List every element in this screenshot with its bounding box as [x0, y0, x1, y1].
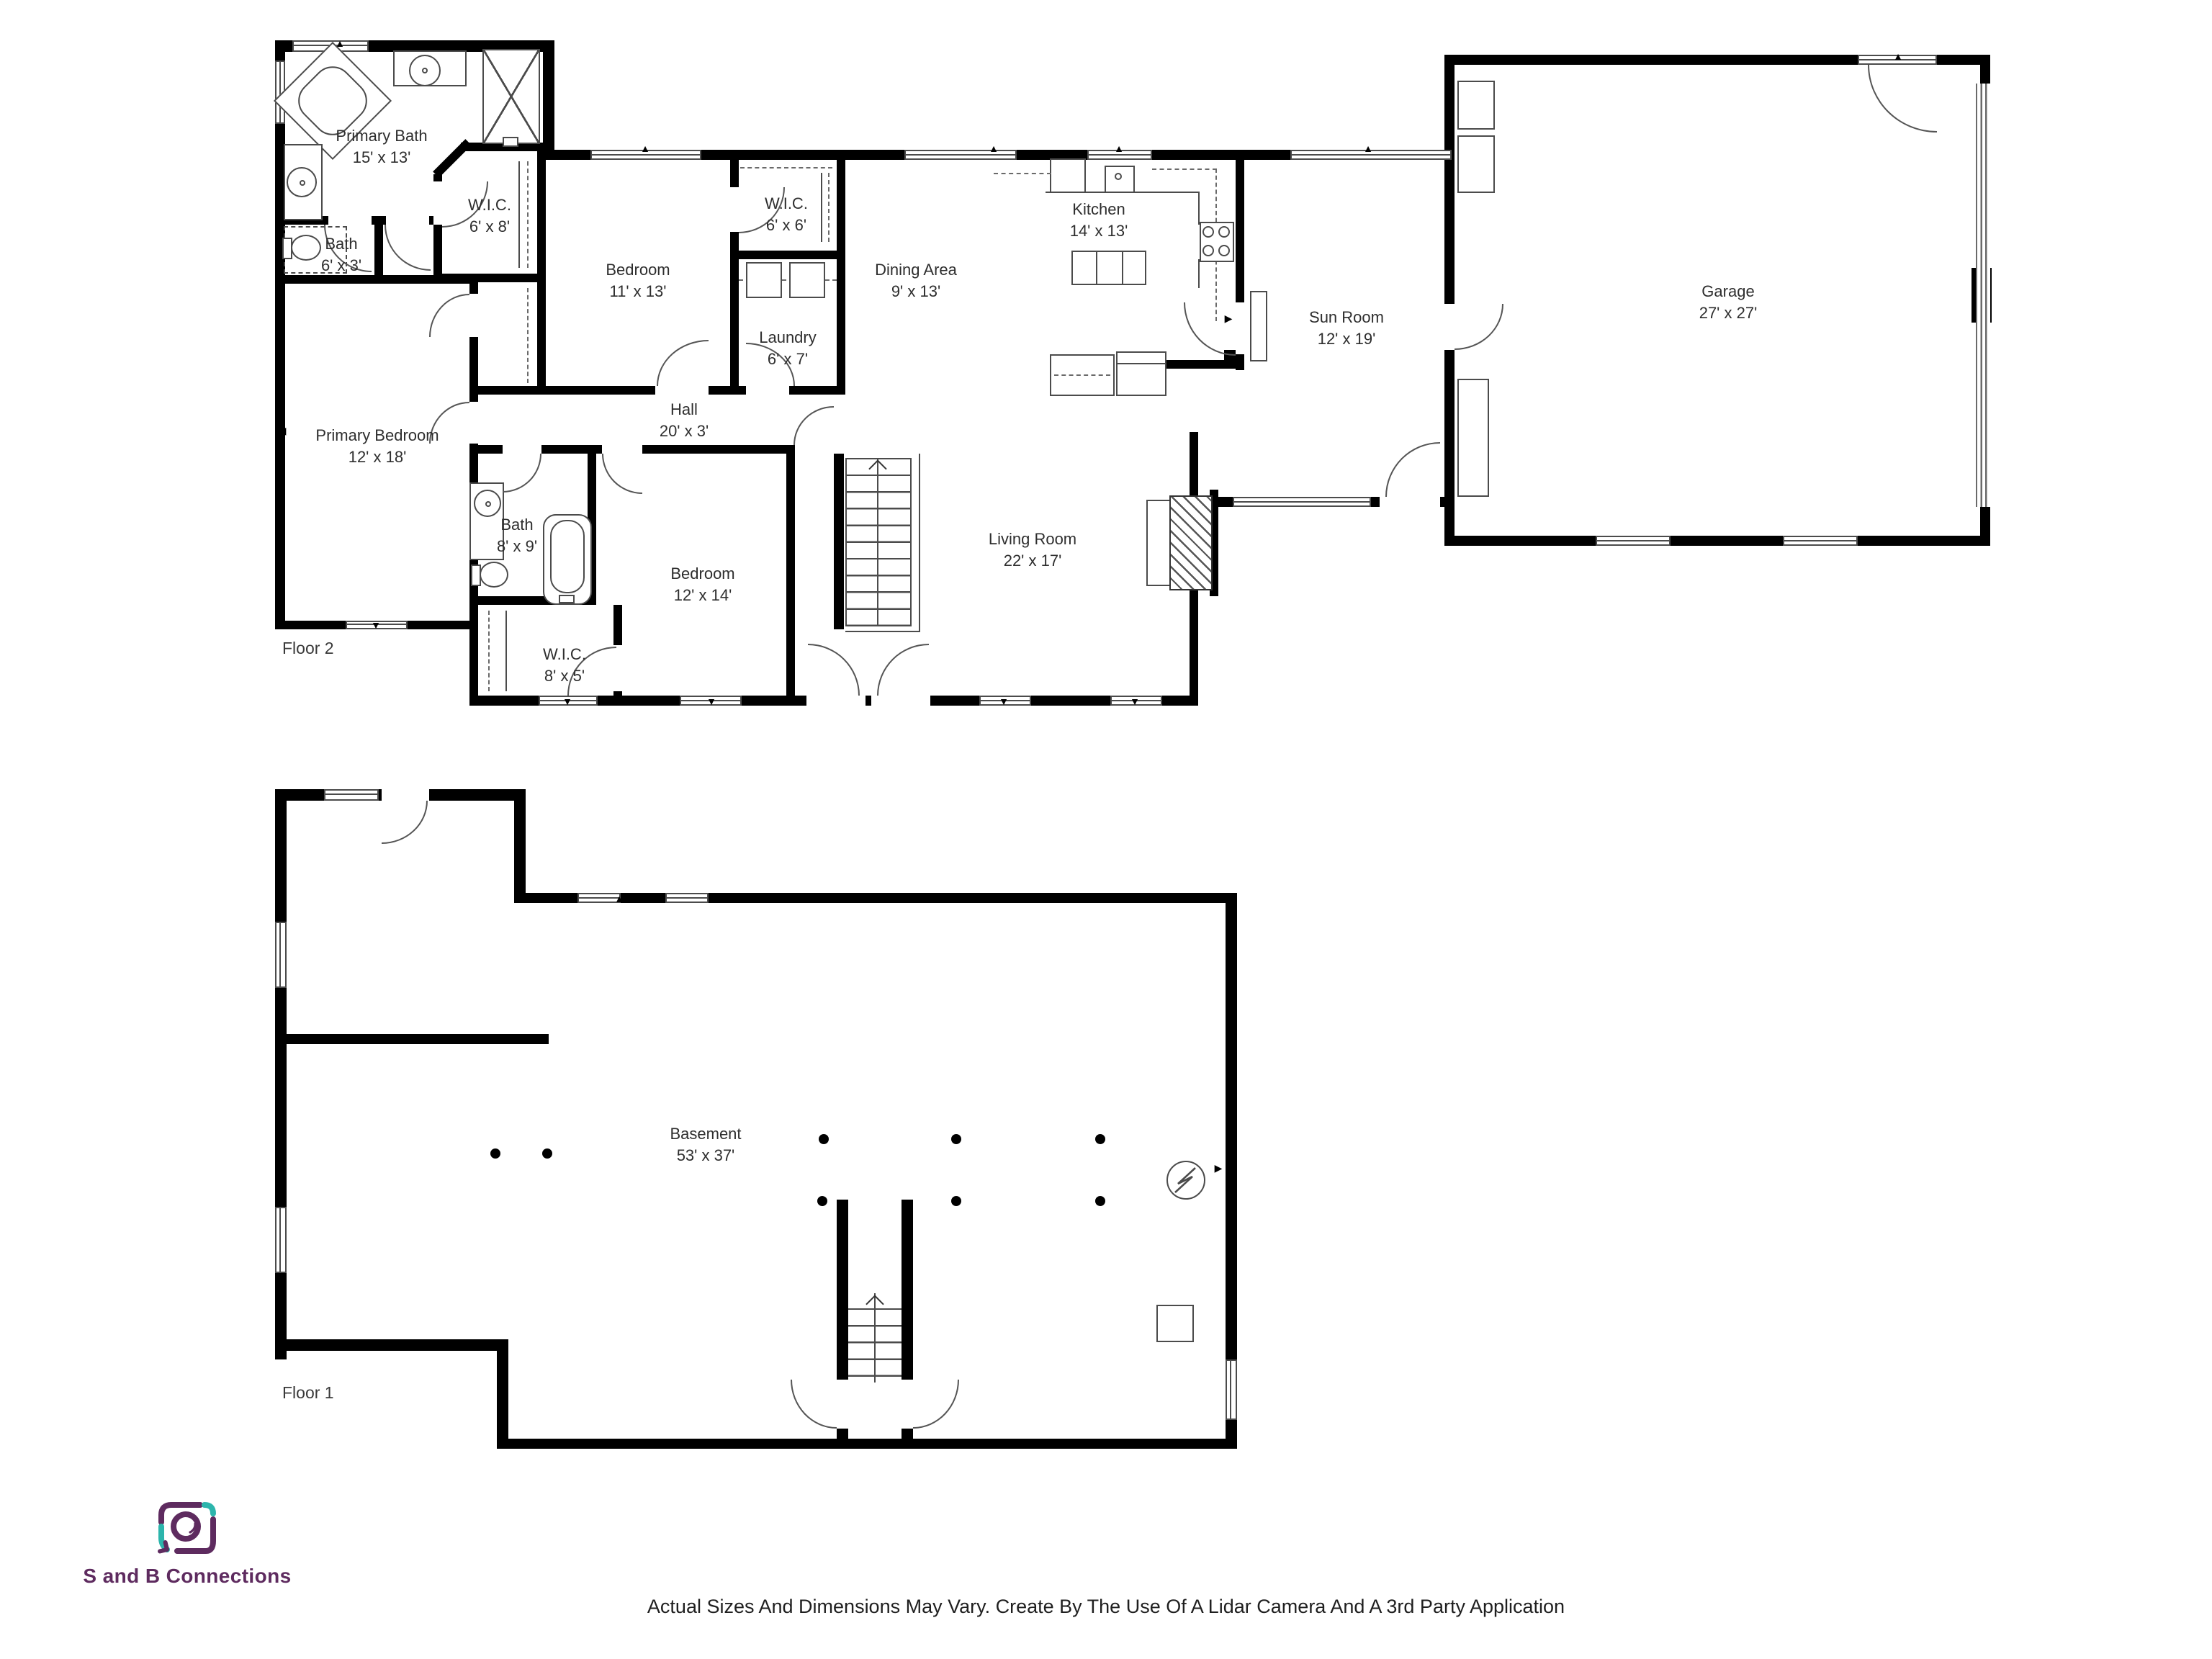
floor-plan-canvas: Actual Sizes And Dimensions May Vary. Cr… — [0, 0, 2212, 1659]
support-column — [951, 1196, 961, 1206]
door-gap — [902, 1380, 913, 1429]
door-gap — [806, 696, 866, 706]
room-label-wic-8x5: W.I.C.8' x 5' — [543, 645, 586, 687]
room-label-primary-bath: Primary Bath15' x 13' — [336, 127, 427, 168]
support-column — [951, 1134, 961, 1144]
wall — [275, 40, 285, 629]
wall — [834, 454, 844, 629]
room-dimensions: 12' x 19' — [1309, 329, 1384, 350]
burner — [1202, 245, 1214, 256]
door-gap — [382, 789, 429, 801]
room-name: W.I.C. — [468, 196, 511, 217]
counter-edge — [1116, 363, 1166, 364]
room-label-hall: Hall20' x 3' — [660, 400, 709, 442]
closet-rod-dashed — [740, 167, 832, 168]
wall-marker-icon: ▶ — [1225, 315, 1233, 325]
company-logo: S and B Connections — [58, 1498, 317, 1587]
wall-marker-icon: ▲ — [614, 895, 624, 905]
counter-edge — [1046, 192, 1200, 193]
room-label-bedroom-11x13: Bedroom11' x 13' — [606, 261, 670, 302]
counter-edge — [1198, 259, 1200, 288]
kitchen-island — [1071, 251, 1146, 285]
wall — [730, 251, 845, 259]
room-label-bath-small: Bath6' x 3' — [321, 235, 361, 276]
door-gap — [655, 386, 709, 395]
room-dimensions: 27' x 27' — [1699, 303, 1758, 324]
room-label-living-room: Living Room22' x 17' — [989, 530, 1076, 572]
wall — [433, 139, 472, 178]
fireplace — [1169, 495, 1213, 590]
room-name: W.I.C. — [765, 194, 808, 215]
wall — [275, 1339, 508, 1351]
wall — [1190, 588, 1198, 706]
wall-marker-icon: ▼ — [706, 698, 716, 708]
room-label-dining-area: Dining Area9' x 13' — [875, 261, 957, 302]
sink-drain — [485, 501, 491, 507]
closet-rod — [505, 611, 507, 691]
wall — [543, 40, 554, 158]
counter-dashed — [1054, 374, 1110, 376]
island-divider — [1122, 251, 1123, 285]
stairs-outline — [845, 631, 920, 632]
room-name: Laundry — [759, 328, 817, 349]
door-gap — [433, 181, 442, 225]
counter-dashed — [1152, 168, 1217, 170]
stairs-outline — [919, 454, 920, 632]
room-name: Bath — [497, 516, 537, 536]
window — [904, 150, 1017, 160]
wall-marker-icon: ▲ — [1114, 145, 1124, 155]
wall-marker-icon: ▲ — [1893, 53, 1903, 63]
burner — [1218, 226, 1230, 238]
room-dimensions: 11' x 13' — [606, 282, 670, 302]
door-arc — [503, 454, 541, 493]
wall — [837, 150, 845, 395]
wall — [1190, 432, 1198, 497]
wall — [275, 789, 287, 1359]
burner — [1202, 226, 1214, 238]
wall-marker-icon: ▲ — [427, 791, 437, 801]
window — [324, 789, 379, 801]
window — [1596, 536, 1671, 546]
door-gap — [1444, 304, 1455, 350]
disclaimer-text: Actual Sizes And Dimensions May Vary. Cr… — [647, 1596, 1565, 1617]
room-name: Bedroom — [606, 261, 670, 282]
wall — [730, 150, 739, 395]
room-dimensions: 6' x 3' — [321, 256, 361, 276]
room-name: Garage — [1699, 282, 1758, 303]
shelf — [1250, 291, 1267, 361]
door-arc — [382, 801, 428, 844]
garage-door — [1976, 84, 1990, 507]
island-divider — [1096, 251, 1097, 285]
door-arc — [808, 644, 860, 696]
door-arc — [429, 294, 469, 337]
door-gap — [386, 216, 429, 225]
room-dimensions: 15' x 13' — [336, 148, 427, 168]
closet-rod-dashed — [828, 173, 829, 242]
counter — [1116, 351, 1166, 396]
electric-bolt-icon — [1166, 1161, 1205, 1200]
door-gap — [746, 386, 789, 395]
door-arc — [1455, 304, 1503, 350]
wall — [786, 454, 795, 700]
tub-faucet — [559, 595, 575, 603]
window — [1226, 1359, 1237, 1420]
door-gap — [1380, 497, 1440, 507]
room-label-primary-bedroom: Primary Bedroom12' x 18' — [315, 426, 439, 468]
wall-marker-icon: ▼ — [1130, 698, 1140, 708]
floor-label-floor-2: Floor 2 — [282, 641, 334, 658]
room-label-sun-room: Sun Room12' x 19' — [1309, 308, 1384, 350]
camera-logo-icon — [150, 1498, 225, 1558]
window — [665, 893, 709, 903]
counter-edge — [1198, 193, 1200, 225]
room-label-basement: Basement53' x 37' — [670, 1125, 741, 1166]
closet-rod — [821, 173, 822, 242]
room-name: Basement — [670, 1125, 741, 1146]
wall-marker-icon: ▼ — [371, 621, 381, 631]
room-dimensions: 22' x 17' — [989, 551, 1076, 572]
door-arc — [602, 454, 642, 494]
wall-marker-icon: ◀ — [279, 427, 287, 437]
stairs-center-line — [877, 458, 878, 626]
room-dimensions: 53' x 37' — [670, 1146, 741, 1166]
wall — [1444, 55, 1455, 544]
room-label-wic-6x8: W.I.C.6' x 8' — [468, 196, 511, 238]
floor-label-floor-1: Floor 1 — [282, 1385, 334, 1403]
support-column — [1095, 1134, 1105, 1144]
room-name: Sun Room — [1309, 308, 1384, 329]
wall-marker-icon: ▲ — [1363, 145, 1373, 155]
door-gap — [1236, 302, 1244, 354]
door-gap — [469, 402, 478, 444]
bathtub-basin — [550, 520, 585, 593]
wall-marker-icon: ▼ — [562, 698, 572, 708]
closet-rod-dashed — [488, 611, 490, 691]
window — [1783, 536, 1858, 546]
wall-marker-icon: ▲ — [335, 40, 345, 50]
room-label-laundry: Laundry6' x 7' — [759, 328, 817, 370]
hearth — [1146, 500, 1171, 586]
wall-marker-icon: ◀ — [279, 1089, 287, 1100]
wall-marker-icon: ▼ — [859, 1441, 869, 1451]
door-arc — [1184, 302, 1236, 356]
company-name: S and B Connections — [58, 1564, 317, 1587]
closet-rod-dashed — [527, 288, 529, 383]
support-column — [819, 1134, 829, 1144]
room-dimensions: 12' x 14' — [670, 585, 734, 606]
wall — [275, 1034, 549, 1044]
door-arc — [791, 1380, 837, 1429]
wall-marker-icon: ▶ — [1215, 1164, 1223, 1174]
room-label-bedroom-12x14: Bedroom12' x 14' — [670, 565, 734, 606]
wall-marker-icon: ▲ — [640, 145, 650, 155]
dryer — [789, 262, 825, 298]
door-gap — [503, 445, 541, 454]
window — [275, 1207, 287, 1273]
wall — [514, 801, 526, 902]
room-dimensions: 20' x 3' — [660, 421, 709, 442]
counter-dashed — [994, 173, 1051, 174]
wall-marker-icon: ▼ — [1716, 538, 1726, 548]
door-arc — [913, 1380, 959, 1429]
door-gap — [602, 445, 642, 454]
workbench — [1457, 379, 1489, 497]
room-name: Bedroom — [670, 565, 734, 585]
room-name: Primary Bedroom — [315, 426, 439, 447]
door-gap — [730, 187, 739, 232]
wall — [505, 1439, 1237, 1449]
room-dimensions: 8' x 9' — [497, 536, 537, 557]
closet-rod-dashed — [527, 161, 529, 268]
door-arc — [877, 644, 929, 696]
faucet — [1115, 173, 1122, 180]
door-arc — [1385, 442, 1440, 497]
room-label-garage: Garage27' x 27' — [1699, 282, 1758, 324]
support-column — [1095, 1196, 1105, 1206]
door-arc — [793, 406, 834, 445]
shower-valve — [503, 137, 518, 147]
room-name: Primary Bath — [336, 127, 427, 148]
room-dimensions: 8' x 5' — [543, 666, 586, 687]
washer — [746, 262, 782, 298]
room-dimensions: 6' x 8' — [468, 217, 511, 238]
window — [1233, 497, 1371, 507]
door-gap — [469, 294, 478, 337]
closet-rod — [518, 161, 520, 268]
room-name: Living Room — [989, 530, 1076, 551]
room-name: Kitchen — [1070, 200, 1128, 221]
wall — [1980, 55, 1990, 84]
room-label-wic-6x6: W.I.C.6' x 6' — [765, 194, 808, 236]
room-name: Dining Area — [875, 261, 957, 282]
refrigerator — [1050, 158, 1086, 193]
sink-drain — [300, 180, 305, 186]
wall — [1980, 507, 1990, 546]
burner — [1218, 245, 1230, 256]
utility-cabinet — [1457, 135, 1495, 193]
toilet-bowl — [480, 562, 508, 588]
wall — [275, 275, 478, 284]
room-dimensions: 12' x 18' — [315, 447, 439, 468]
door-gap — [328, 216, 372, 225]
utility-cabinet — [1457, 81, 1495, 130]
room-dimensions: 6' x 6' — [765, 215, 808, 236]
door-arc — [657, 340, 709, 386]
wall — [537, 143, 546, 395]
door-arc — [1868, 65, 1937, 132]
support-column — [542, 1148, 552, 1159]
door-arc — [385, 225, 431, 271]
support-column — [817, 1196, 827, 1206]
wall-marker-icon: ▼ — [999, 698, 1009, 708]
room-dimensions: 6' x 7' — [759, 349, 817, 370]
door-gap — [871, 696, 930, 706]
utility-box — [1156, 1305, 1194, 1342]
room-label-bath-8x9: Bath8' x 9' — [497, 516, 537, 557]
wall-marker-icon: ▲ — [989, 145, 999, 155]
room-dimensions: 9' x 13' — [875, 282, 957, 302]
window — [275, 922, 287, 988]
sink-drain — [422, 68, 428, 73]
support-column — [490, 1148, 500, 1159]
door-gap — [837, 1380, 848, 1429]
room-name: W.I.C. — [543, 645, 586, 666]
room-name: Hall — [660, 400, 709, 421]
wall-marker-icon: ▼ — [679, 444, 689, 454]
shower — [482, 49, 540, 144]
room-dimensions: 14' x 13' — [1070, 221, 1128, 242]
toilet-bowl — [291, 235, 321, 261]
room-name: Bath — [321, 235, 361, 256]
wall — [497, 1339, 508, 1449]
room-label-kitchen: Kitchen14' x 13' — [1070, 200, 1128, 242]
